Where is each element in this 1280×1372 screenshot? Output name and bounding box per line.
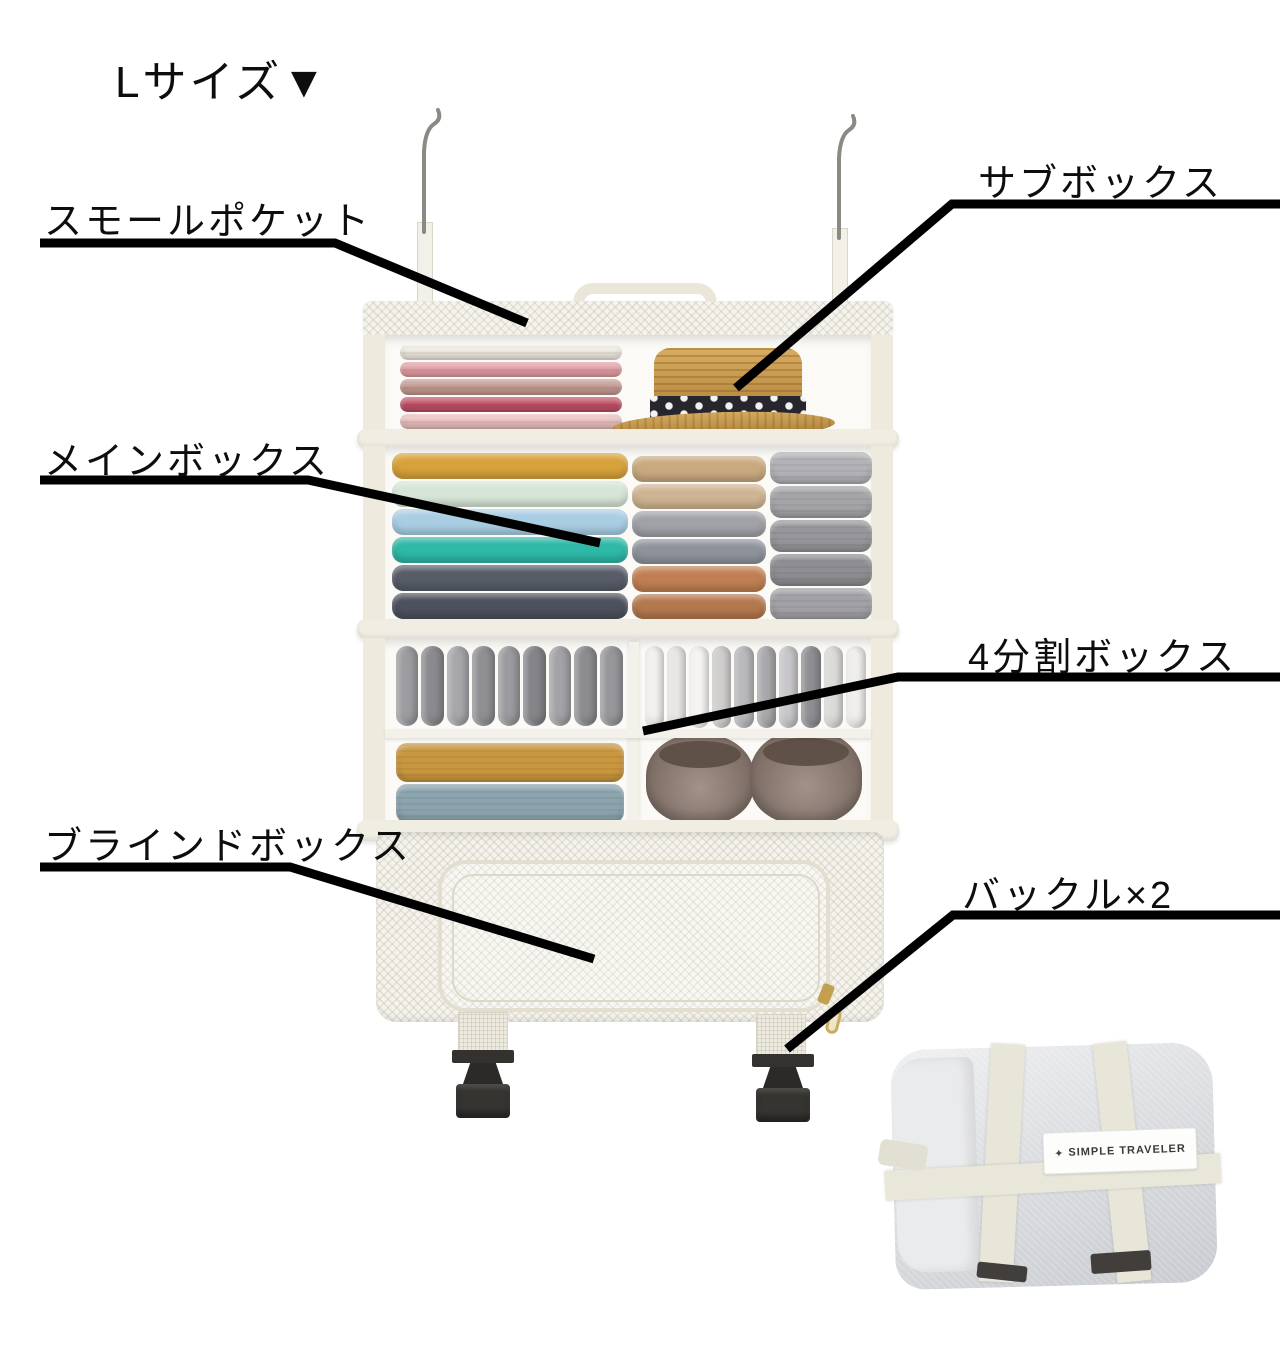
folded-item <box>632 484 766 510</box>
small-pocket-lid <box>363 301 893 336</box>
slipper-right <box>750 730 862 824</box>
rolled-socks-left <box>394 646 624 726</box>
split-divider-horizontal <box>385 729 871 738</box>
brand-tag-text: SIMPLE TRAVELER <box>1068 1143 1186 1159</box>
hanger-hook-left-icon <box>424 110 439 232</box>
folded-item <box>523 646 546 726</box>
brand-tag: ✦ SIMPLE TRAVELER <box>1042 1127 1197 1174</box>
folded-item <box>392 481 628 507</box>
folded-item <box>549 646 572 726</box>
clothes-stack-right <box>770 451 872 621</box>
label-blind-box: ブラインドボックス <box>44 815 412 870</box>
folded-item <box>392 593 628 619</box>
hanger-strap-left <box>417 222 433 306</box>
slipper-opening <box>763 738 848 766</box>
folded-item <box>779 646 798 728</box>
folded-item <box>632 539 766 565</box>
brand-logo-icon: ✦ <box>1054 1146 1064 1159</box>
label-buckles: バックル×2 <box>962 864 1174 919</box>
size-title: Lサイズ▼ <box>115 46 329 110</box>
folded-item <box>632 594 766 620</box>
folded-item <box>498 646 521 726</box>
folded-item <box>689 646 708 728</box>
folded-item <box>846 646 865 728</box>
label-small-pocket: スモールポケット <box>44 190 372 245</box>
label-four-split-box: 4分割ボックス <box>968 626 1237 681</box>
buckle-block <box>456 1084 510 1118</box>
hanger-strap-right <box>832 228 848 312</box>
folded-item <box>770 554 872 586</box>
folded-item <box>447 646 470 726</box>
folded-item <box>396 743 624 782</box>
hanger-hook-right-icon <box>839 116 854 238</box>
clothes-stack-middle <box>632 455 766 620</box>
zipper-track <box>452 874 820 1002</box>
sweater-stack <box>400 344 622 430</box>
folded-item <box>632 456 766 482</box>
slipper-opening <box>659 741 741 768</box>
buckle-waist <box>763 1067 803 1088</box>
buckle-left <box>452 1050 514 1118</box>
buckle-bar <box>752 1054 814 1067</box>
folded-item <box>801 646 820 728</box>
folded-item <box>632 566 766 592</box>
folded-item <box>396 646 419 726</box>
folded-bag: ✦ SIMPLE TRAVELER <box>893 1046 1215 1286</box>
bag-buckle-bit-right <box>1090 1250 1151 1274</box>
folded-item <box>770 520 872 552</box>
folded-item <box>770 588 872 620</box>
folded-item <box>400 397 622 412</box>
product-infographic: Lサイズ▼ <box>0 0 1280 1372</box>
folded-item <box>472 646 495 726</box>
folded-socks-right <box>643 646 867 728</box>
folded-item <box>600 646 623 726</box>
clothes-stack-left <box>392 452 628 620</box>
folded-item <box>770 452 872 484</box>
folded-item <box>712 646 731 728</box>
buckle-block <box>756 1088 810 1122</box>
folded-item <box>392 537 628 563</box>
folded-item <box>645 646 664 728</box>
buckle-bar <box>452 1050 514 1063</box>
towel-stack <box>396 742 624 824</box>
label-sub-box: サブボックス <box>978 152 1223 207</box>
folded-item <box>574 646 597 726</box>
folded-item <box>400 362 622 377</box>
slipper-left <box>646 734 754 824</box>
folded-item <box>400 345 622 360</box>
folded-item <box>632 511 766 537</box>
folded-item <box>400 379 622 394</box>
folded-item <box>757 646 776 728</box>
folded-item <box>400 414 622 429</box>
folded-item <box>824 646 843 728</box>
buckle-right <box>752 1054 814 1122</box>
label-main-box: メインボックス <box>44 430 330 485</box>
folded-item <box>421 646 444 726</box>
folded-item <box>392 453 628 479</box>
folded-item <box>734 646 753 728</box>
folded-item <box>770 486 872 518</box>
shelf-divider-2 <box>357 619 899 639</box>
folded-item <box>667 646 686 728</box>
folded-item <box>392 509 628 535</box>
folded-item <box>392 565 628 591</box>
folded-item <box>396 784 624 823</box>
buckle-waist <box>463 1063 503 1084</box>
